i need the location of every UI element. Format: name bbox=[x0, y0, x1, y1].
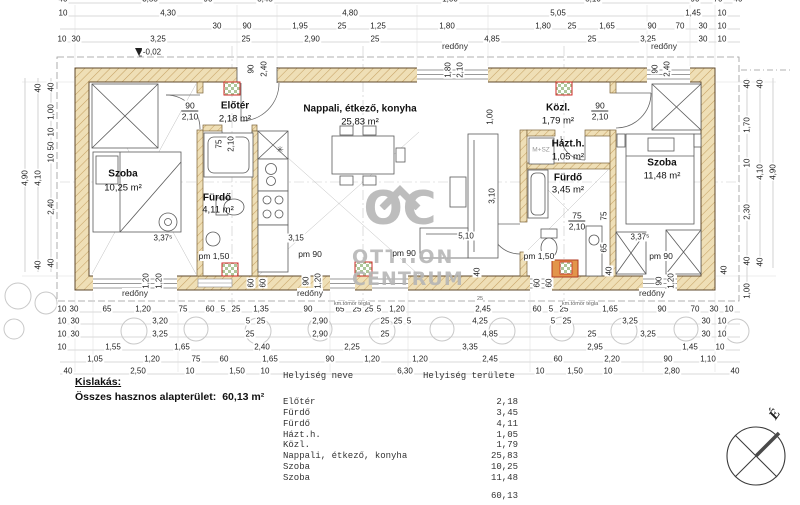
summary-value: 60,13 m² bbox=[222, 391, 264, 403]
dim-label: 25 bbox=[567, 22, 578, 31]
dim-label: 90 bbox=[325, 355, 336, 364]
dim-label: 5,45 bbox=[256, 0, 274, 4]
dim-label: 1,10 bbox=[699, 355, 717, 364]
dim-label: 1,25 bbox=[369, 22, 387, 31]
dim-label: 2,45 bbox=[474, 305, 492, 314]
dim-label: 30 bbox=[69, 305, 80, 314]
table-header-area: Helyiség területe bbox=[423, 371, 515, 381]
dim-label: 1,20 bbox=[155, 272, 164, 290]
dim-label: 5,05 bbox=[549, 9, 567, 18]
dim-label: 4,25 bbox=[471, 317, 489, 326]
dim-label: 3,25 bbox=[149, 35, 167, 44]
table-row: Fürdő3,45 bbox=[283, 408, 518, 418]
dim-label: 25 bbox=[337, 22, 348, 31]
watermark: OC OTTHON CENTRUM bbox=[352, 184, 448, 290]
dim-label: 4,10 bbox=[34, 169, 43, 187]
shutter-label: redőny bbox=[442, 41, 468, 51]
dim-label: 25 bbox=[231, 305, 242, 314]
dim-label: 5,10 bbox=[584, 0, 602, 4]
dim-label: 40 bbox=[720, 265, 729, 276]
room-label-szoba-right: Szoba bbox=[647, 158, 676, 169]
room-label-nappali: Nappali, étkező, konyha bbox=[303, 104, 416, 115]
dim-label: 10 bbox=[185, 367, 196, 376]
dim-label: 40 bbox=[730, 367, 741, 376]
dim-label: 1,55 bbox=[104, 343, 122, 352]
washer-dryer-label: M+SZ bbox=[532, 147, 550, 154]
dim-label: 65 bbox=[600, 243, 609, 254]
dim-label: 5 bbox=[245, 317, 251, 326]
room-label-eloter: Előtér bbox=[221, 101, 249, 112]
dim-label: 1,45 bbox=[681, 343, 699, 352]
shutter-label: redőny bbox=[122, 288, 148, 298]
dim-label: 75 bbox=[600, 211, 609, 222]
dim-label: 75 bbox=[178, 305, 189, 314]
compass bbox=[727, 427, 785, 485]
dim-label: 30 bbox=[701, 317, 712, 326]
dim-label: 3,35 bbox=[461, 343, 479, 352]
dim-label: 5 bbox=[550, 317, 556, 326]
dim-label: 10 bbox=[717, 35, 728, 44]
room-area-furdo-right: 3,45 m² bbox=[552, 185, 584, 196]
dim-label: 30 bbox=[70, 330, 81, 339]
dim-label: 90 bbox=[242, 22, 253, 31]
dim-label: 6,30 bbox=[396, 367, 414, 376]
dim-label: 3,25 bbox=[151, 330, 169, 339]
dim-label: 10 bbox=[57, 330, 68, 339]
floor-plan-page: OC OTTHON CENTRUM 40 3,55 90 5,45 1,00 5… bbox=[0, 0, 800, 505]
dim-label: 4,10 bbox=[756, 163, 765, 181]
dim-label: 5,10 bbox=[457, 232, 475, 241]
dim-label: 10 bbox=[717, 330, 728, 339]
table-row: Fürdő4,11 bbox=[283, 419, 518, 429]
dim-label: 4,85 bbox=[483, 35, 501, 44]
dim-label: 40 bbox=[743, 79, 752, 90]
dim-label: 40 bbox=[743, 256, 752, 267]
dim-label: 2,45 bbox=[481, 355, 499, 364]
dim-label: 40 bbox=[58, 0, 69, 4]
dim-label: 3,37⁵ bbox=[153, 234, 174, 243]
table-header-name: Helyiség neve bbox=[283, 371, 353, 381]
dim-label: 60 bbox=[533, 278, 542, 289]
dim-label: 25 bbox=[241, 35, 252, 44]
parapet-label: pm 90 bbox=[392, 248, 416, 258]
room-area-szoba-right: 11,48 m² bbox=[644, 171, 681, 182]
dim-label: 4,90 bbox=[21, 169, 30, 187]
dim-label: 40 bbox=[756, 257, 765, 268]
dim-label: 40 bbox=[733, 0, 744, 4]
dim-label: 25 bbox=[562, 317, 573, 326]
dim-label: 1,20 bbox=[388, 305, 406, 314]
dim-label: 1,05 bbox=[86, 355, 104, 364]
dim-label: 70 bbox=[713, 0, 724, 4]
dim-label: 1,80 bbox=[534, 22, 552, 31]
dim-label: 2,20 bbox=[603, 355, 621, 364]
dim-label: 30 bbox=[701, 330, 712, 339]
dim-label: 5 bbox=[376, 305, 382, 314]
dim-label: 3,15 bbox=[287, 234, 305, 243]
dim-label: 1,00 bbox=[486, 108, 495, 126]
dim-label: 1,70 bbox=[743, 116, 752, 134]
dim-label: 1,20 bbox=[143, 355, 161, 364]
table-row: Közl.1,79 bbox=[283, 440, 518, 450]
dim-label: 60 bbox=[259, 278, 268, 289]
dim-label: 25 bbox=[245, 330, 256, 339]
dim-label: 40 bbox=[34, 83, 43, 94]
watermark-line2: CENTRUM bbox=[352, 268, 448, 290]
dim-label: 10 bbox=[57, 317, 68, 326]
dim-label: 10 bbox=[57, 305, 68, 314]
door-size-label: 90 2,10 bbox=[181, 101, 198, 122]
dim-label: 90 bbox=[203, 0, 214, 4]
level-label: -0,02 bbox=[142, 48, 162, 57]
table-total: 60,13 bbox=[491, 491, 518, 501]
dim-label: 90 bbox=[690, 0, 701, 4]
boiler-icon: ✳ bbox=[276, 145, 284, 156]
dim-label: 10 bbox=[717, 22, 728, 31]
dim-label: 25 bbox=[477, 296, 483, 302]
dim-label: 1,65 bbox=[173, 343, 191, 352]
dim-label: 3,20 bbox=[151, 317, 169, 326]
dim-label: 40 bbox=[63, 367, 74, 376]
dim-label: 25 bbox=[587, 35, 598, 44]
dim-label: 30 bbox=[212, 22, 223, 31]
dim-label: 40 bbox=[756, 79, 765, 90]
dim-label: 25 bbox=[380, 330, 391, 339]
dim-label: 10 bbox=[743, 158, 752, 169]
shutter-label: redőny bbox=[639, 288, 665, 298]
dim-label: 40 bbox=[473, 267, 482, 278]
dim-label: 25 bbox=[256, 317, 267, 326]
dim-label: 90 bbox=[655, 276, 664, 287]
dim-label: 1,95 bbox=[291, 22, 309, 31]
dim-label: 2,95 bbox=[586, 343, 604, 352]
dim-label: 75 bbox=[215, 139, 224, 150]
room-area-furdo-left: 4,11 m² bbox=[202, 205, 234, 216]
dim-label: 4,90 bbox=[769, 163, 778, 181]
dim-label: 10 bbox=[717, 9, 728, 18]
dim-label: 30 bbox=[70, 317, 81, 326]
dim-label: 1,65 bbox=[601, 305, 619, 314]
dim-label: 1,20 bbox=[363, 355, 381, 364]
dim-label: 60 bbox=[247, 278, 256, 289]
dim-label: 40 bbox=[47, 82, 56, 93]
dim-label: 60 bbox=[219, 355, 230, 364]
dim-label: 90 bbox=[657, 305, 668, 314]
dim-label: 10 bbox=[47, 153, 56, 164]
dim-label: 90 bbox=[302, 276, 311, 287]
dim-label: 3,25 bbox=[621, 317, 639, 326]
dim-label: 2,10 bbox=[456, 61, 465, 79]
dim-label: 1,50 bbox=[228, 367, 246, 376]
dim-label: 40 bbox=[605, 266, 614, 277]
dim-label: 1,20 bbox=[667, 272, 676, 290]
dim-label: 25 bbox=[380, 317, 391, 326]
dim-label: 3,10 bbox=[488, 187, 497, 205]
dim-label: 1,65 bbox=[598, 22, 616, 31]
summary-heading: Kislakás: bbox=[75, 376, 121, 388]
parapet-label: pm 90 bbox=[298, 249, 322, 259]
dim-label: 25 bbox=[370, 35, 381, 44]
dim-label: 1,00 bbox=[743, 282, 752, 300]
dim-label: 10 bbox=[535, 367, 546, 376]
dim-label: 30 bbox=[698, 22, 709, 31]
room-area-nappali: 25,83 m² bbox=[341, 117, 379, 128]
room-label-kozl: Közl. bbox=[546, 103, 570, 114]
trees bbox=[4, 283, 749, 344]
dim-label: 65 bbox=[102, 305, 113, 314]
room-area-hazth: 1,05 m² bbox=[552, 152, 584, 163]
dim-label: 1,65 bbox=[261, 355, 279, 364]
dim-label: 2,90 bbox=[311, 317, 329, 326]
room-label-furdo-right: Fürdő bbox=[554, 173, 582, 184]
dim-label: 10 bbox=[260, 367, 271, 376]
room-area-szoba-left: 10,25 m² bbox=[104, 183, 142, 194]
dim-label: 2,40 bbox=[47, 198, 56, 216]
dim-label: 10 bbox=[57, 35, 68, 44]
dim-label: 40 bbox=[34, 260, 43, 271]
dim-label: 90 bbox=[663, 355, 674, 364]
dim-label: 5 bbox=[548, 305, 554, 314]
summary-line: Összes hasznos alapterület:60,13 m² bbox=[75, 391, 270, 403]
room-area-eloter: 2,18 m² bbox=[219, 114, 251, 125]
dim-label: 10 bbox=[717, 317, 728, 326]
dim-label: 25 bbox=[587, 330, 598, 339]
dim-label: 4,80 bbox=[341, 9, 359, 18]
table-row: Előtér2,18 bbox=[283, 397, 518, 407]
dim-label: 1,00 bbox=[47, 103, 56, 121]
dim-label: 10 bbox=[603, 367, 614, 376]
brick-note: km.tömör tégla bbox=[562, 301, 598, 307]
dim-label: 3,25 bbox=[639, 330, 657, 339]
dim-label: 2,90 bbox=[311, 330, 329, 339]
dim-label: 2,10 bbox=[227, 135, 236, 153]
dim-label: 25 bbox=[393, 317, 404, 326]
dim-label: 1,50 bbox=[566, 367, 584, 376]
dim-label: 2,90 bbox=[303, 35, 321, 44]
parapet-label: pm 1,50 bbox=[199, 251, 230, 261]
table-row: Szoba11,48 bbox=[283, 473, 518, 483]
summary-label: Összes hasznos alapterület: bbox=[75, 391, 216, 403]
brick-note: km.tömör tégla bbox=[334, 301, 370, 307]
dim-label: 10 bbox=[724, 305, 735, 314]
dim-label: 1,80 bbox=[444, 61, 453, 79]
dim-label: 60 bbox=[532, 305, 543, 314]
dim-label: 3,37⁵ bbox=[630, 233, 651, 242]
dim-label: 10 bbox=[57, 343, 68, 352]
parapet-label: pm 90 bbox=[649, 251, 673, 261]
shutter-label: redőny bbox=[297, 288, 323, 298]
dim-label: 2,25 bbox=[343, 343, 361, 352]
parapet-label: pm 1,50 bbox=[524, 251, 555, 261]
dim-label: 10 bbox=[715, 343, 726, 352]
room-label-hazth: Házt.h. bbox=[552, 139, 585, 150]
table-row: Szoba10,25 bbox=[283, 462, 518, 472]
dim-label: 1,80 bbox=[438, 22, 456, 31]
dim-label: 30 bbox=[698, 35, 709, 44]
table-row: Nappali, étkező, konyha25,83 bbox=[283, 451, 518, 461]
dim-label: 2,80 bbox=[663, 367, 681, 376]
table-row: Házt.h.1,05 bbox=[283, 430, 518, 440]
dim-label: 1,20 bbox=[134, 305, 152, 314]
dim-label: 4,85 bbox=[481, 330, 499, 339]
dim-label: 70 bbox=[690, 305, 701, 314]
dim-label: 90 bbox=[303, 305, 314, 314]
watermark-roof-icon bbox=[352, 184, 448, 210]
dim-label: 2,40 bbox=[253, 343, 271, 352]
dim-label: 2,30 bbox=[743, 203, 752, 221]
room-area-kozl: 1,79 m² bbox=[542, 116, 574, 127]
shutter-label: redőny bbox=[651, 41, 677, 51]
dim-label: 2,40 bbox=[260, 60, 269, 78]
dim-label: 10 bbox=[58, 9, 69, 18]
room-label-szoba-left: Szoba bbox=[108, 169, 137, 180]
dim-label: 2,50 bbox=[129, 367, 147, 376]
dim-label: 2,40 bbox=[663, 60, 672, 78]
dim-label: 60 bbox=[553, 355, 564, 364]
dim-label: 90 bbox=[647, 22, 658, 31]
dim-label: 60 bbox=[545, 278, 554, 289]
dim-label: 90 bbox=[651, 64, 660, 75]
dim-label: 50 bbox=[47, 141, 56, 152]
dim-label: 3,55 bbox=[141, 0, 159, 4]
dim-label: 90 bbox=[247, 64, 256, 75]
door-size-label: 90 2,10 bbox=[591, 101, 608, 122]
dim-label: 40 bbox=[47, 258, 56, 269]
dim-label: 5 bbox=[406, 317, 412, 326]
dim-label: 4,30 bbox=[159, 9, 177, 18]
room-label-furdo-left: Fürdő bbox=[203, 193, 231, 204]
dim-label: 70 bbox=[675, 22, 686, 31]
dim-label: 30 bbox=[71, 35, 82, 44]
dim-label: 5 bbox=[220, 305, 226, 314]
dim-label: 1,45 bbox=[684, 9, 702, 18]
dim-label: 75 bbox=[191, 355, 202, 364]
dim-label: 1,20 bbox=[411, 355, 429, 364]
dim-label: 1,35 bbox=[252, 305, 270, 314]
dim-label: 10 bbox=[47, 127, 56, 138]
dim-label: 30 bbox=[709, 305, 720, 314]
dim-label: 1,00 bbox=[441, 0, 459, 4]
dim-label: 60 bbox=[205, 305, 216, 314]
door-size-label: 75 2,10 bbox=[568, 211, 585, 232]
